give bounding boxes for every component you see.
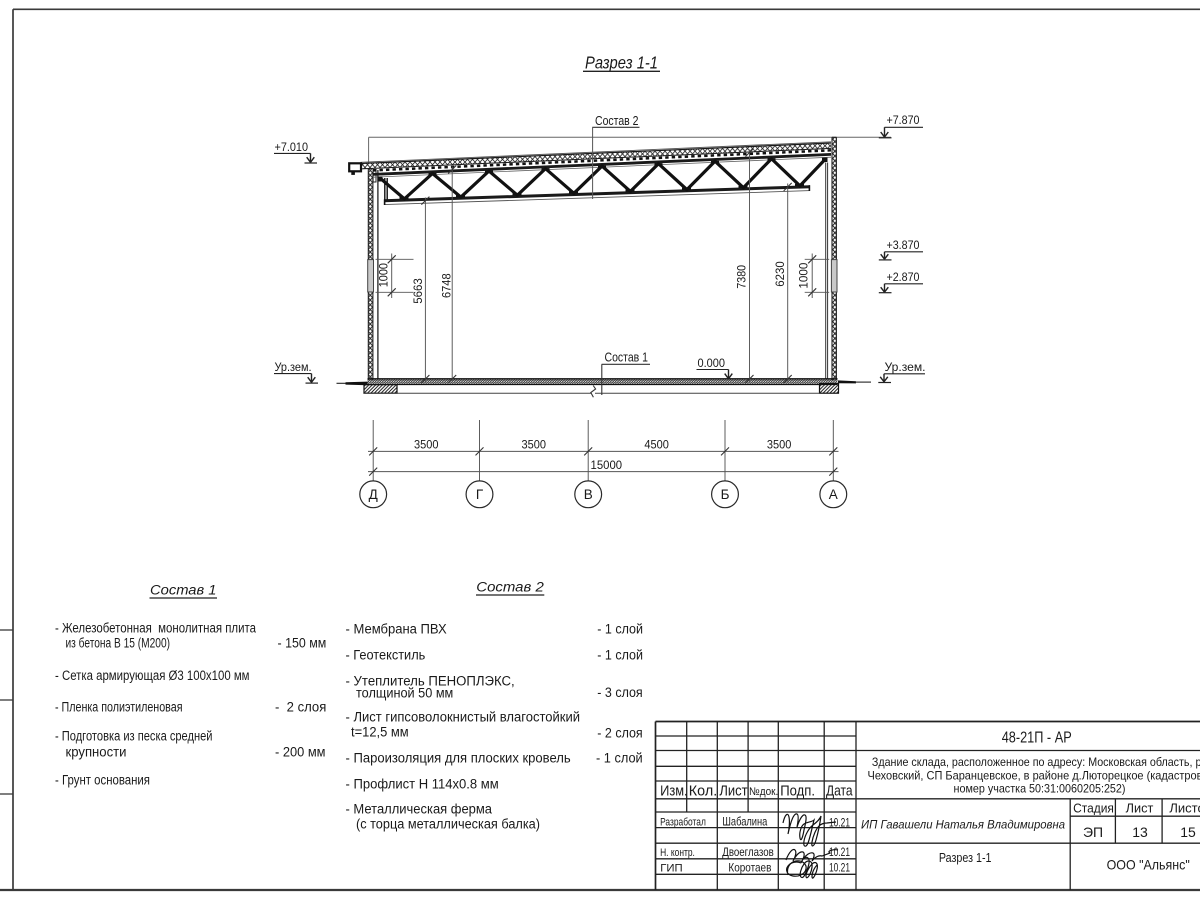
svg-text:Состав 1: Состав 1 <box>150 583 217 599</box>
svg-text:+2.870: +2.870 <box>887 270 920 284</box>
svg-text:ГИП: ГИП <box>660 863 682 875</box>
svg-text:ООО "Альянс": ООО "Альянс" <box>1107 858 1190 873</box>
svg-text:- 2 слоя: - 2 слоя <box>597 726 642 741</box>
svg-text:- 1 слой: - 1 слой <box>597 622 643 637</box>
svg-text:Д: Д <box>369 487 378 502</box>
svg-text:Разрез 1-1: Разрез 1-1 <box>585 53 658 73</box>
svg-text:Состав 2: Состав 2 <box>595 113 639 128</box>
svg-text:- 200 мм: - 200 мм <box>275 744 326 759</box>
svg-text:номер участка 50:31:0060205:25: номер участка 50:31:0060205:252) <box>954 781 1126 795</box>
svg-text:- Металлическая ферма: - Металлическая ферма <box>346 802 493 817</box>
svg-text:- Железобетонная монолитная п: - Железобетонная монолитная плита <box>55 621 256 636</box>
svg-text:1000: 1000 <box>797 262 811 288</box>
svg-text:Листов: Листов <box>1169 801 1200 816</box>
svg-text:Изм.: Изм. <box>660 784 688 800</box>
svg-text:+7.010: +7.010 <box>275 140 309 154</box>
svg-text:А: А <box>829 487 838 502</box>
svg-text:0.000: 0.000 <box>698 356 726 370</box>
svg-text:+3.870: +3.870 <box>887 238 920 252</box>
svg-text:- Пленка полиэтиленовая: - Пленка полиэтиленовая <box>55 699 183 714</box>
svg-text:6748: 6748 <box>440 273 454 298</box>
svg-text:15: 15 <box>1180 824 1196 840</box>
svg-text:13: 13 <box>1132 824 1148 840</box>
svg-text:- 2 слоя: - 2 слоя <box>275 699 326 714</box>
svg-text:- Сетка армирующая Ø3 100x100: - Сетка армирующая Ø3 100x100 мм <box>55 668 250 683</box>
svg-text:толщиной 50 мм: толщиной 50 мм <box>356 686 453 701</box>
svg-text:- 1 слой: - 1 слой <box>596 751 643 766</box>
svg-text:- 3 слоя: - 3 слоя <box>597 685 642 700</box>
svg-text:Стадия: Стадия <box>1073 801 1114 816</box>
svg-text:крупности: крупности <box>66 744 127 759</box>
svg-text:№док.: №док. <box>749 786 778 798</box>
svg-text:Н. контр.: Н. контр. <box>660 847 695 859</box>
svg-text:Состав 1: Состав 1 <box>605 350 649 365</box>
svg-text:+7.870: +7.870 <box>887 113 920 127</box>
svg-text:- Пароизоляция для плоских кро: - Пароизоляция для плоских кровель <box>346 751 571 766</box>
svg-text:Здание склада, расположенное п: Здание склада, расположенное по адресу: … <box>872 755 1200 769</box>
svg-text:ЭП: ЭП <box>1083 824 1103 840</box>
svg-text:Кол.: Кол. <box>689 784 717 800</box>
svg-text:ИП Гавашели Наталья Владимиров: ИП Гавашели Наталья Владимировна <box>861 818 1065 832</box>
svg-text:Разработал: Разработал <box>660 817 706 829</box>
svg-text:Разрез 1-1: Разрез 1-1 <box>939 851 992 865</box>
svg-text:1000: 1000 <box>376 263 390 287</box>
svg-text:- Подготовка из песка средней: - Подготовка из песка средней <box>55 729 213 744</box>
svg-text:7380: 7380 <box>735 265 749 289</box>
svg-text:из бетона В 15 (М200): из бетона В 15 (М200) <box>66 636 171 651</box>
svg-text:10.21: 10.21 <box>829 861 850 875</box>
svg-text:Чеховский, СП Баранцевское, в: Чеховский, СП Баранцевское, в районе д.Л… <box>868 768 1200 782</box>
svg-text:3500: 3500 <box>414 439 439 452</box>
svg-text:Лист: Лист <box>719 784 748 800</box>
svg-text:6230: 6230 <box>773 261 787 287</box>
svg-text:3500: 3500 <box>522 439 547 452</box>
svg-text:Шабалина: Шабалина <box>722 815 767 829</box>
svg-text:48-21П - АР: 48-21П - АР <box>1002 730 1072 747</box>
svg-text:Состав 2: Состав 2 <box>476 579 544 595</box>
svg-text:- Мембрана ПВХ: - Мембрана ПВХ <box>346 622 447 637</box>
svg-text:Двоеглазов: Двоеглазов <box>722 845 774 859</box>
svg-text:- 1 слой: - 1 слой <box>597 648 643 663</box>
svg-text:- Грунт основания: - Грунт основания <box>55 773 150 788</box>
svg-text:4500: 4500 <box>644 439 669 452</box>
svg-text:15000: 15000 <box>591 459 623 472</box>
svg-text:Лист: Лист <box>1126 801 1154 816</box>
svg-text:Г: Г <box>476 487 484 502</box>
svg-text:Коротаев: Коротаев <box>728 861 771 875</box>
svg-text:5663: 5663 <box>411 278 425 304</box>
svg-text:- Геотекстиль: - Геотекстиль <box>346 648 426 663</box>
svg-text:- 150 мм: - 150 мм <box>278 636 327 651</box>
svg-text:t=12,5 мм: t=12,5 мм <box>351 724 409 739</box>
svg-text:- Лист гипсоволокнистый влагос: - Лист гипсоволокнистый влагостойкий <box>346 710 581 725</box>
svg-text:3500: 3500 <box>767 439 792 452</box>
svg-text:Ур.зем.: Ур.зем. <box>885 360 926 374</box>
svg-text:- Профлист Н 114x0.8 мм: - Профлист Н 114x0.8 мм <box>346 776 499 791</box>
svg-text:Дата: Дата <box>826 784 853 800</box>
svg-text:(с торца металлическая балка): (с торца металлическая балка) <box>356 816 540 831</box>
svg-text:Б: Б <box>721 487 730 502</box>
svg-text:Подп.: Подп. <box>780 784 815 800</box>
svg-text:Ур.зем.: Ур.зем. <box>275 360 312 374</box>
svg-text:10.21: 10.21 <box>829 845 850 859</box>
svg-text:В: В <box>584 487 593 502</box>
